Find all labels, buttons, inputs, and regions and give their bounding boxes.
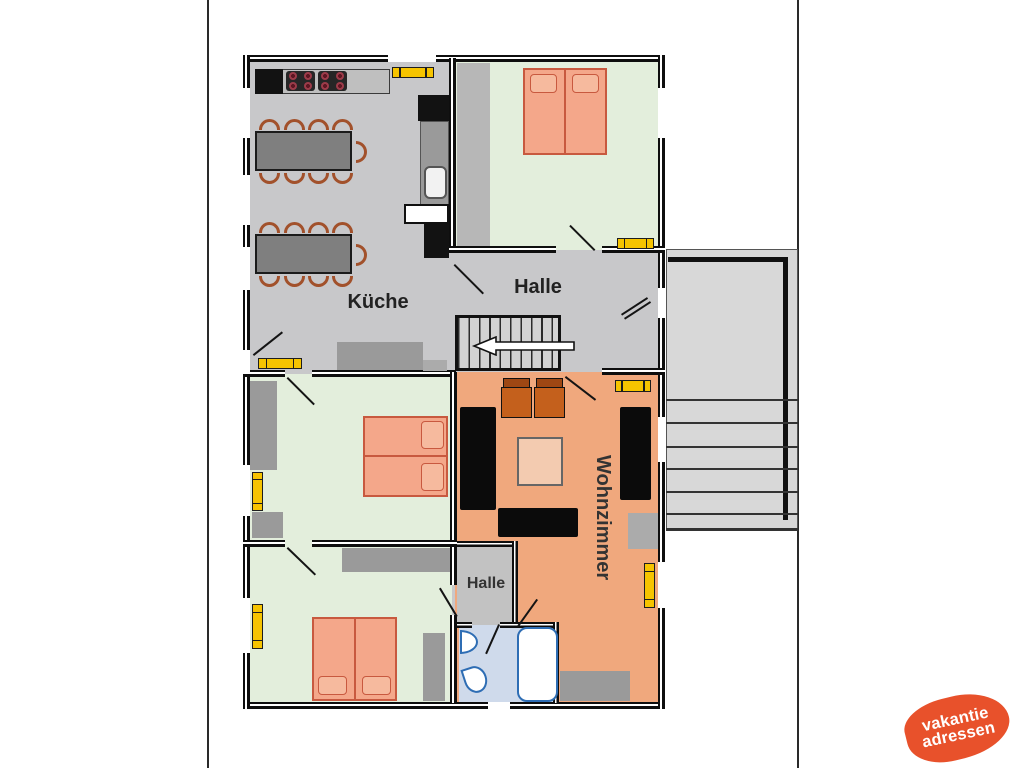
window-right-2	[658, 417, 665, 462]
burner-icon	[304, 82, 312, 90]
page-border-line-left	[207, 0, 209, 768]
kitchen-dishwasher	[404, 204, 449, 224]
wall-bedroomML-bedroomBL-right	[312, 540, 457, 547]
wall-bedroomML-bedroomBL-left	[243, 540, 285, 547]
burner-icon	[289, 82, 297, 90]
window-left-2	[243, 175, 250, 225]
wall-kitchen-bedroomML-right	[312, 370, 456, 377]
window-marker-bedroomTR	[617, 238, 654, 249]
stove-cooktop-left	[286, 71, 315, 91]
dresser-bedroomML	[252, 512, 283, 538]
bathtub	[517, 627, 558, 702]
window-marker-bedroomBL	[252, 604, 263, 649]
wall-bedrooms-living-lower	[450, 615, 457, 703]
pillow	[318, 676, 347, 695]
wall-bathroom-top-left	[457, 622, 472, 628]
pillow	[362, 676, 391, 695]
dresser-bedroomBL	[423, 633, 445, 701]
living-room-label: Wohnzimmer	[591, 455, 614, 575]
door-opening-to-staircase	[658, 288, 665, 318]
window-left-3	[243, 247, 250, 290]
staircase-step-line	[666, 399, 798, 401]
staircase-railing-top	[668, 257, 788, 262]
pillow	[572, 74, 599, 93]
window-bottom-wall	[488, 702, 510, 709]
staircase-step-line	[666, 468, 798, 470]
bed-divider	[354, 619, 356, 699]
kitchen-appliance-block	[424, 224, 449, 258]
wall-bedrooms-living-upper	[450, 372, 457, 585]
dining-table-1	[255, 131, 352, 171]
burner-icon	[321, 72, 329, 80]
sofa-bottom	[498, 508, 578, 537]
wall-hall-living	[602, 368, 665, 375]
sofa-left	[460, 407, 496, 510]
hall-small-label: Halle	[458, 575, 514, 593]
vakantieadressen-logo: vakantie adressen	[899, 684, 1016, 771]
kitchen-column-appliance	[418, 95, 449, 121]
living-sideboard	[560, 671, 630, 701]
radiator-kitchen	[258, 358, 302, 369]
wall-small-hall-top	[457, 541, 517, 547]
window-marker-top	[392, 67, 434, 78]
window-left-1	[243, 88, 250, 138]
hall-main-label: Halle	[488, 276, 588, 299]
sofa-right	[620, 407, 651, 500]
radiator-living-top	[615, 380, 651, 392]
floor-plan-canvas: Küche Halle Halle Wohnzimmer vakantie ad…	[0, 0, 1024, 768]
bed-divider	[365, 455, 446, 457]
window-right-3	[658, 562, 665, 608]
staircase-railing-right	[783, 257, 788, 520]
stove-cooktop-right	[318, 71, 347, 91]
staircase-step-line	[666, 491, 798, 493]
staircase-step-line	[666, 446, 798, 448]
kitchen-label: Küche	[328, 291, 428, 314]
staircase-step-line	[666, 513, 798, 515]
burner-icon	[304, 72, 312, 80]
staircase-step-line	[666, 528, 798, 531]
wardrobe-bedroomBL	[342, 548, 450, 572]
dining-table-2	[255, 234, 352, 274]
bed-divider	[564, 70, 566, 153]
pillow	[421, 463, 444, 491]
logo-text: vakantie adressen	[918, 704, 997, 750]
wall-outer-right	[658, 55, 665, 709]
radiator-living-right	[644, 563, 655, 608]
window-marker-bedroomML	[252, 472, 263, 511]
kitchen-counter-end	[255, 69, 283, 94]
window-right-1	[658, 88, 665, 138]
window-top-wall	[388, 55, 436, 62]
external-staircase	[666, 249, 798, 530]
bedroom-top-right-closet	[457, 63, 490, 247]
kitchen-sideboard	[337, 342, 423, 370]
stairs-direction-arrow-icon	[466, 336, 576, 356]
side-table	[628, 513, 658, 549]
burner-icon	[289, 72, 297, 80]
staircase-step-line	[666, 422, 798, 424]
armchair	[501, 387, 532, 418]
armchair	[534, 387, 565, 418]
pillow	[421, 421, 444, 449]
wardrobe-bedroomML	[250, 381, 277, 470]
window-left-5	[243, 465, 250, 516]
burner-icon	[321, 82, 329, 90]
burner-icon	[336, 72, 344, 80]
kitchen-sideboard-step	[423, 360, 447, 371]
wall-bedroomTR-hall-left	[449, 246, 556, 253]
window-left-6	[243, 598, 250, 653]
burner-icon	[336, 82, 344, 90]
window-left-4	[243, 350, 250, 372]
kitchen-sink	[424, 166, 447, 199]
wall-kitchen-bedroomTR	[449, 58, 456, 253]
wall-outer-bottom	[243, 702, 665, 709]
pillow	[530, 74, 557, 93]
coffee-table	[517, 437, 563, 486]
